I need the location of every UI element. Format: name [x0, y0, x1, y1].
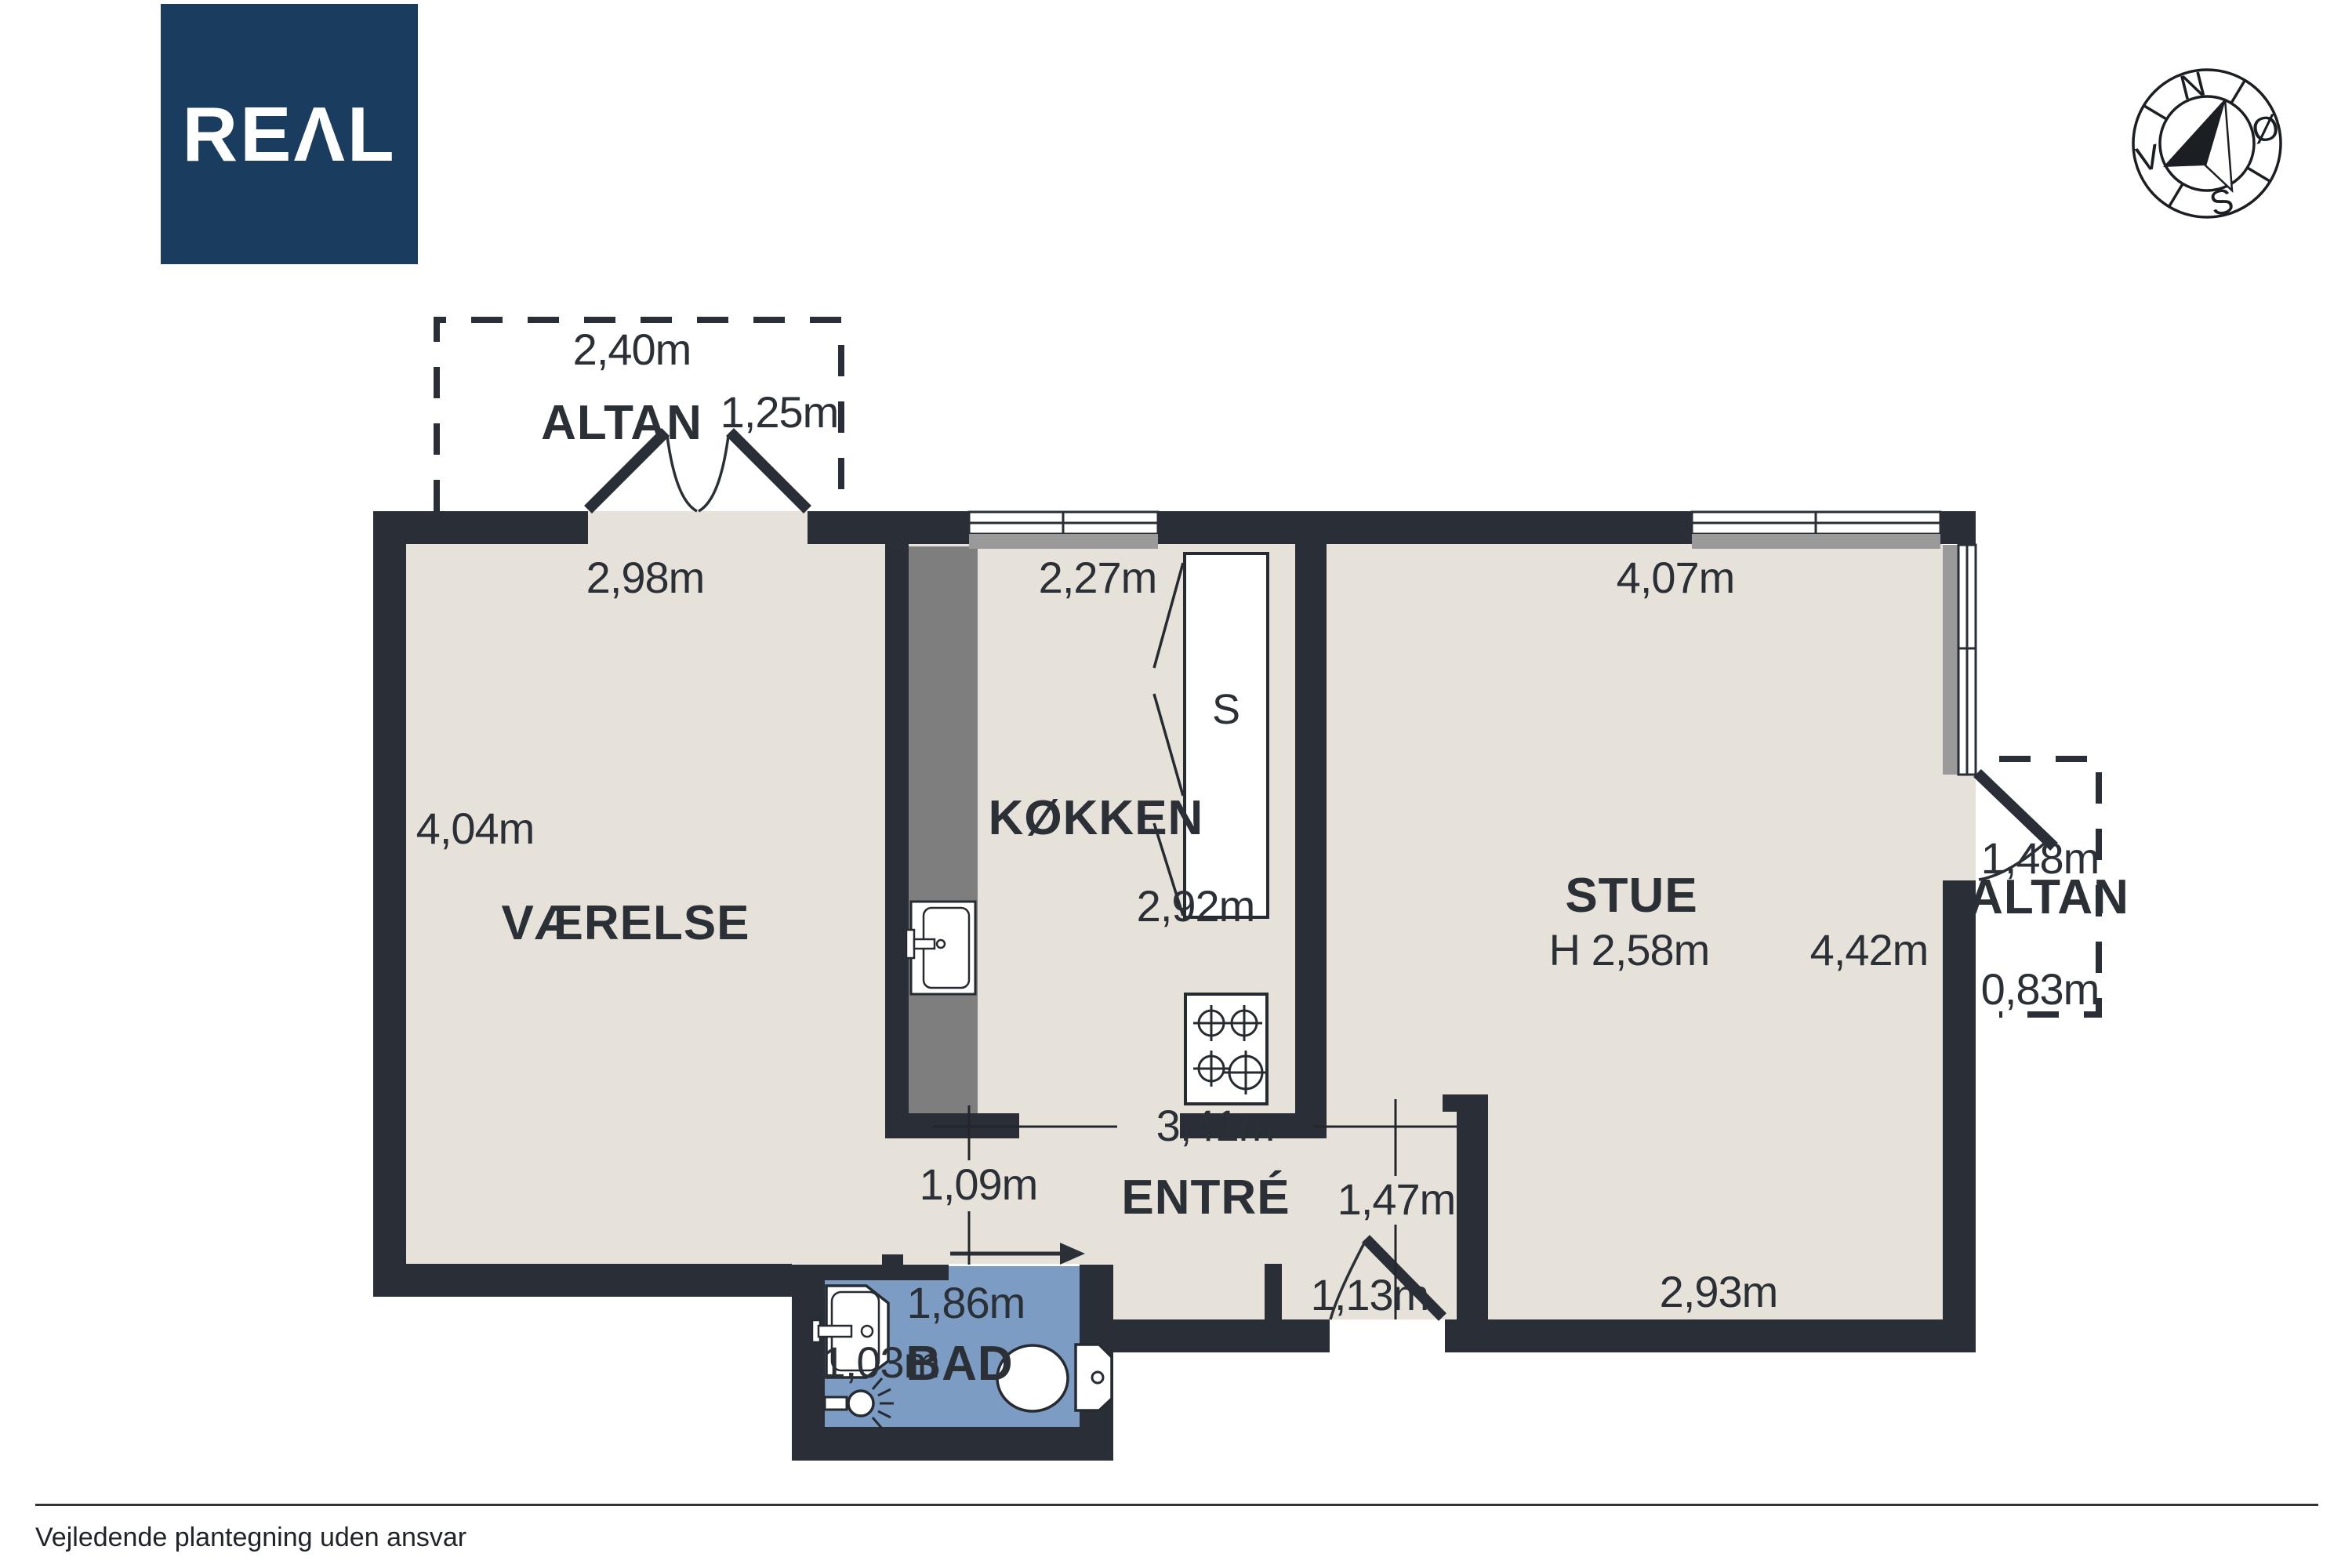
dim-stue-bottom: 2,93m [1660, 1267, 1778, 1316]
room-label-altan-top: ALTAN [541, 396, 702, 450]
right-balcony-door-threshold [1943, 775, 1976, 880]
dim-stue-ceiling: H 2,58m [1549, 925, 1710, 975]
balcony-door-threshold [588, 511, 808, 546]
room-label-altan-right: ALTAN [1968, 870, 2129, 924]
wall-nub [882, 1254, 903, 1265]
room-label-vaerelse: VÆRELSE [501, 896, 750, 950]
dim-koekken-width: 2,27m [1039, 553, 1157, 602]
dim-stue-width: 4,07m [1617, 553, 1735, 602]
dim-koekken-length: 2,92m [1137, 881, 1255, 931]
dim-vaerelse-width: 2,98m [586, 553, 705, 602]
kitchen-window-icon [969, 512, 1158, 549]
floorplan-page: REΛL [0, 0, 2352, 1568]
footer-disclaimer: Vejledende plantegning uden ansvar [35, 1523, 466, 1553]
dim-stue-length: 4,42m [1810, 925, 1929, 975]
toilet-icon [997, 1345, 1112, 1411]
dim-entrance-door: 1,13m [1311, 1270, 1429, 1319]
dim-entre-wall: 1,47m [1338, 1174, 1456, 1224]
stue-window-icon [1692, 512, 1940, 549]
room-label-stue: STUE [1565, 869, 1697, 923]
compass-icon: N Ø S V [2118, 49, 2298, 238]
dim-altan-top-width: 2,40m [573, 325, 691, 374]
footer-divider [35, 1504, 2318, 1506]
room-label-entre: ENTRÉ [1121, 1171, 1290, 1225]
dim-altan-top-door: 1,25m [720, 387, 839, 437]
kitchen-counter [909, 546, 978, 1113]
stue-side-window-icon [1943, 545, 1976, 775]
room-label-bad: BAD [906, 1337, 1013, 1391]
dim-opening-vaerelse: 1,09m [920, 1160, 1038, 1209]
kitchen-sink-icon [906, 902, 975, 994]
floorplan-drawing: 2,40m ALTAN 1,25m 2,98m 2,27m 4,07m 4,04… [0, 0, 2352, 1568]
room-label-koekken: KØKKEN [989, 791, 1204, 845]
stove-icon [1185, 994, 1268, 1104]
dim-entre-width: 3,41m [1156, 1101, 1275, 1150]
dim-vaerelse-length: 4,04m [416, 804, 535, 853]
dim-bad-width: 1,86m [907, 1278, 1025, 1327]
dim-altan-right-depth: 0,83m [1981, 964, 2100, 1014]
closet-label: S [1212, 686, 1240, 733]
